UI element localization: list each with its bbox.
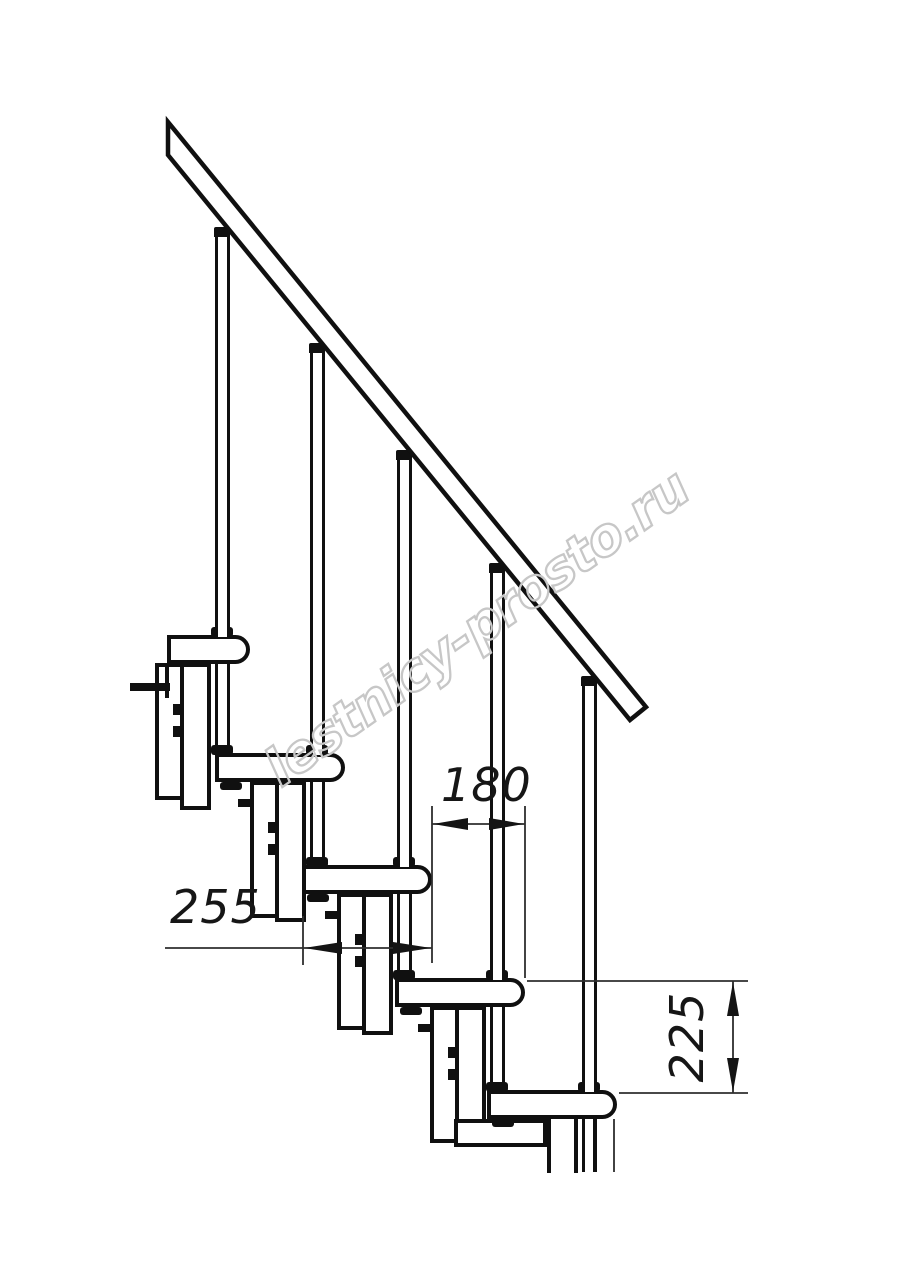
bolt-3-lower [355, 956, 366, 967]
tread-5 [487, 1090, 617, 1119]
support-pipe-3 [362, 893, 393, 1035]
tread-4 [395, 978, 525, 1007]
tread-underside-mount-5 [492, 1119, 514, 1127]
bolt-1-lower [173, 726, 184, 737]
bolt-2-upper [268, 822, 279, 833]
staircase-technical-drawing: lestnicy-prosto.ru 180 255 225 [0, 0, 914, 1280]
arrow-left-step-run [433, 818, 468, 830]
dimension-label-tread-depth: 255 [170, 884, 261, 930]
tread1-cut-edge [165, 664, 169, 698]
tread-1 [167, 635, 250, 664]
arrow-down-step-rise [727, 1058, 739, 1092]
bolt-3-upper [355, 934, 366, 945]
baluster-5-lower-line-b [593, 1119, 597, 1172]
bolt-2-lower [268, 844, 279, 855]
dimension-label-step-rise-wrapper: 225 [664, 982, 714, 1092]
baluster-2 [310, 351, 325, 755]
bolt-4-lower [448, 1069, 459, 1080]
baluster-3-rail-connector [396, 450, 412, 460]
baluster-4-lower-collar [486, 1082, 508, 1092]
baluster-3 [397, 458, 412, 867]
tread-underside-mount-3 [307, 894, 329, 902]
baluster-2-lower-segment [310, 782, 325, 867]
baluster-1-rail-connector [214, 227, 230, 237]
baluster-3-lower-collar [393, 970, 415, 980]
tread-underside-mount-4 [400, 1007, 422, 1015]
baluster-1-lower-segment [215, 664, 230, 755]
support-pipe-1 [180, 663, 211, 810]
tread1-cut-tab [130, 683, 170, 691]
pipe-stub-right [574, 1119, 578, 1173]
bracket-tab-2 [238, 799, 250, 807]
arrow-up-step-rise [727, 982, 739, 1016]
bolt-4-upper [448, 1047, 459, 1058]
baluster-5-lower-line-a [582, 1119, 586, 1172]
dimension-label-step-rise: 225 [660, 992, 714, 1083]
baluster-2-lower-collar [306, 857, 328, 867]
support-pipe-2 [275, 781, 306, 922]
baluster-2-rail-connector [309, 343, 325, 353]
baluster-5 [582, 684, 597, 1092]
pipe-stub-left [547, 1119, 551, 1173]
baluster-1-lower-collar [211, 745, 233, 755]
baluster-4-rail-connector [489, 563, 505, 573]
baluster-3-lower-segment [397, 894, 412, 980]
baluster-1 [215, 235, 230, 637]
tread-3 [302, 865, 432, 894]
tread-underside-mount-2 [220, 782, 242, 790]
bracket-tab-4 [418, 1024, 430, 1032]
bracket-tab-3 [325, 911, 337, 919]
bolt-1-upper [173, 704, 184, 715]
tread-2 [215, 753, 345, 782]
baluster-5-rail-connector [581, 676, 597, 686]
baluster-4-lower-segment [490, 1007, 505, 1092]
dimension-label-step-run: 180 [441, 762, 532, 808]
